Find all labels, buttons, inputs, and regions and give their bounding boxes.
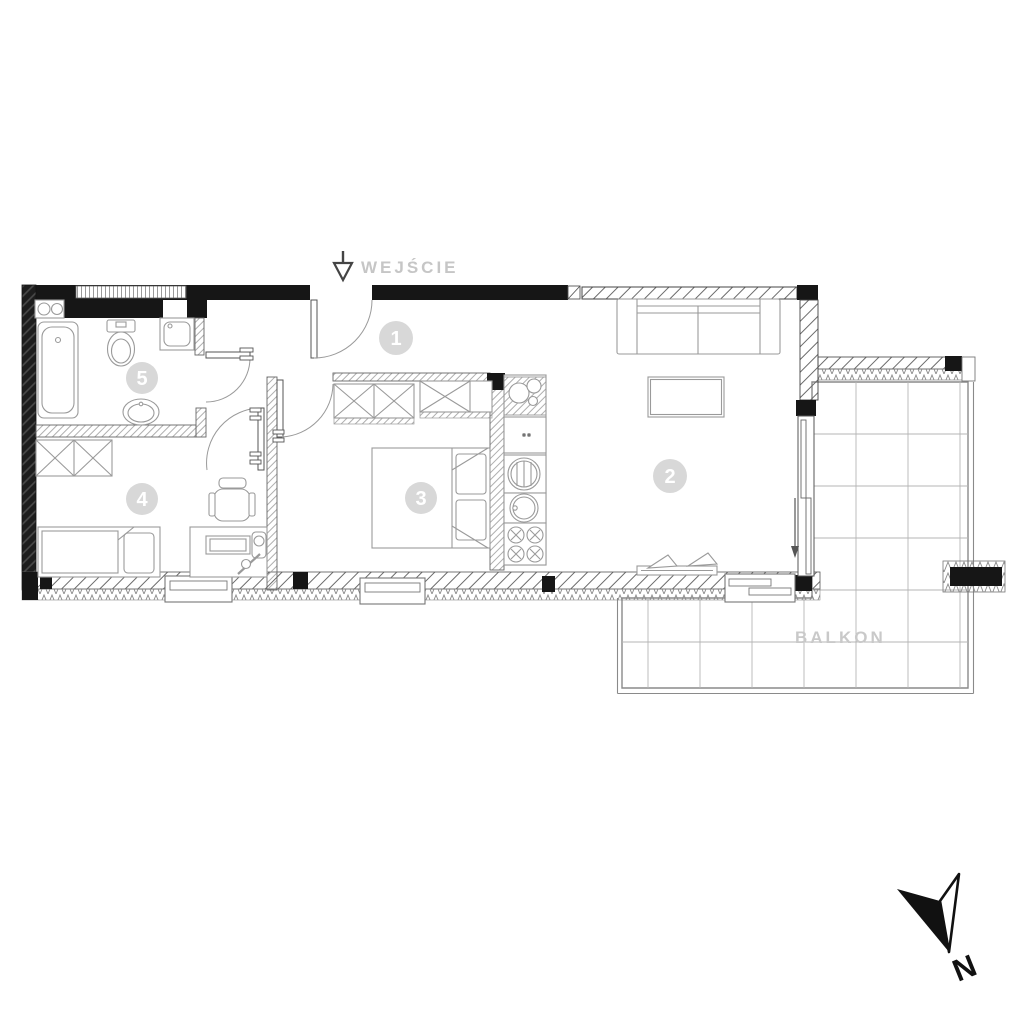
bathroom-right-wall-lower — [196, 408, 206, 437]
svg-text:3: 3 — [415, 488, 426, 510]
room-badge-1: 1 — [379, 321, 413, 355]
room-badge-5: 5 — [126, 362, 158, 394]
bathroom-top-wall — [63, 298, 163, 318]
floorplan-drawing: BALKON — [0, 0, 1024, 1024]
svg-text:4: 4 — [136, 489, 148, 511]
north-label: N — [948, 948, 982, 989]
bathroom-fixtures — [35, 300, 194, 425]
top-wall-mid — [372, 285, 568, 300]
wall-column — [945, 356, 962, 371]
desk — [190, 527, 267, 577]
room-badge-4: 4 — [126, 483, 158, 515]
top-wall-right-hatched — [582, 287, 797, 299]
balcony-top-wall — [818, 356, 975, 381]
right-wall — [800, 300, 818, 400]
stove — [504, 523, 546, 565]
washbasin — [123, 399, 159, 425]
wardrobe-room3-a — [334, 384, 414, 424]
desk-chair — [209, 478, 255, 521]
window-room3 — [360, 578, 425, 604]
room-badge-2: 2 — [653, 459, 687, 493]
wall-stub — [187, 285, 207, 318]
entrance-door — [311, 300, 372, 358]
entrance-label: WEJŚCIE — [361, 258, 459, 277]
window-living — [725, 574, 795, 602]
wardrobe-room4 — [36, 440, 112, 476]
balcony-label: BALKON — [795, 628, 886, 647]
washing-machine — [160, 318, 194, 350]
kitchen-sink — [504, 377, 546, 415]
console-table-chairs — [637, 553, 717, 575]
entrance-mark: WEJŚCIE — [334, 251, 459, 280]
balcony-sliding-door — [791, 416, 814, 576]
top-wall-vent-band — [76, 286, 186, 298]
toilet — [107, 320, 135, 366]
sofa — [617, 299, 780, 354]
wardrobe-room3-b — [420, 381, 492, 418]
svg-text:1: 1 — [390, 328, 401, 350]
balcony-wall-stub — [943, 561, 1005, 592]
room-badge-3: 3 — [405, 482, 437, 514]
window-room4 — [165, 576, 232, 602]
double-sink-unit — [35, 300, 64, 318]
coffee-table — [648, 377, 724, 417]
bathroom-right-wall-upper — [195, 318, 204, 355]
entrance-arrow-icon — [334, 251, 352, 280]
svg-text:5: 5 — [136, 368, 147, 390]
kitchen — [504, 375, 546, 565]
living-room-furniture — [617, 299, 780, 575]
hall-room4-wall — [267, 377, 277, 590]
svg-text:2: 2 — [664, 466, 675, 488]
bathtub — [38, 322, 78, 418]
single-bed — [38, 527, 160, 577]
left-wall — [22, 285, 36, 590]
washer-kitchen — [504, 455, 546, 493]
room3-top-wall — [333, 373, 490, 381]
fridge — [504, 417, 546, 453]
kitchen-round-sink — [504, 493, 546, 523]
room3-furniture — [334, 381, 492, 548]
floorplan-page: BALKON — [0, 0, 1024, 1024]
bathroom-bottom-wall — [36, 425, 196, 437]
north-arrow-icon: N — [897, 874, 981, 988]
room3-door — [277, 380, 333, 437]
corner-column — [797, 285, 818, 300]
